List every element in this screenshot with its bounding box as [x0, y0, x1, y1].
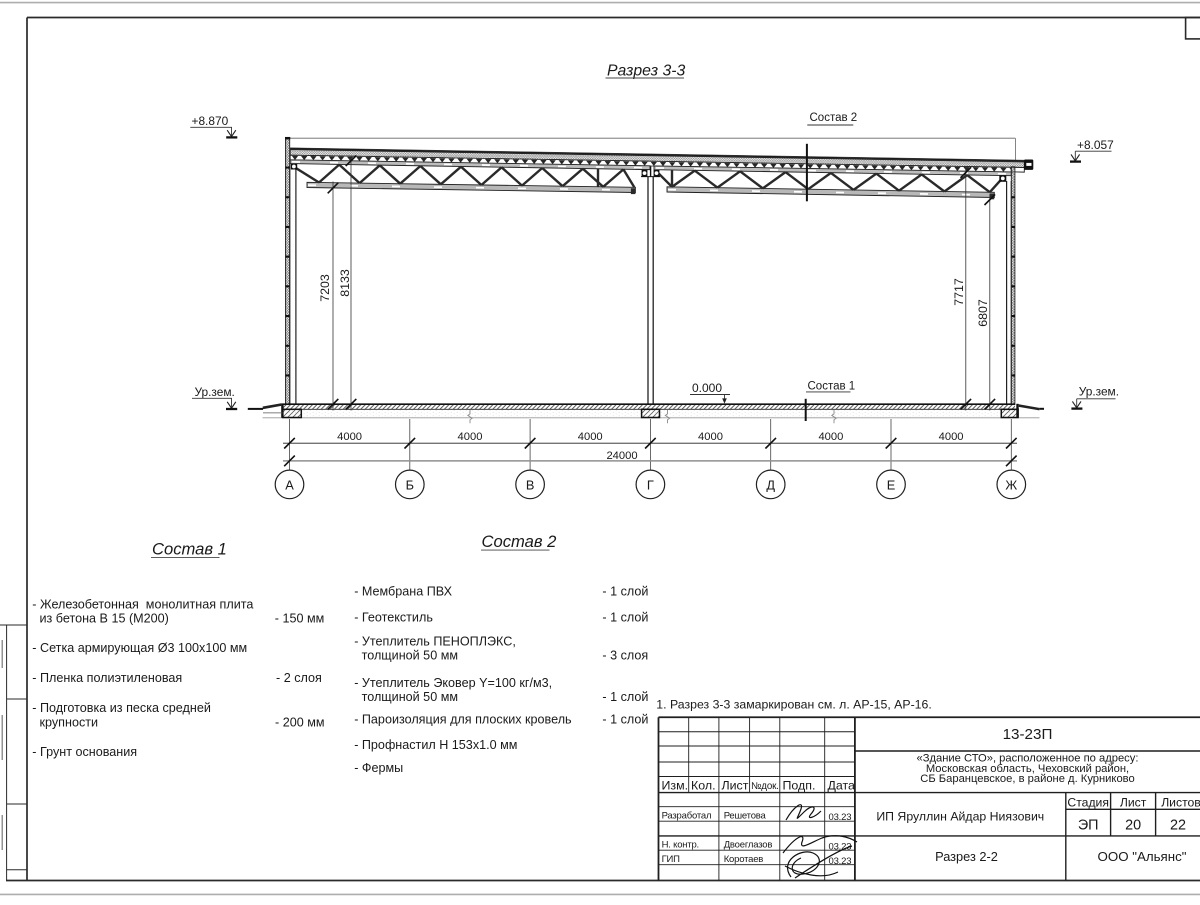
svg-text:Лист: Лист — [722, 779, 749, 793]
svg-text:- 1 слой: - 1 слой — [602, 690, 648, 704]
svg-text:7203: 7203 — [318, 274, 332, 302]
svg-text:Стадия: Стадия — [1067, 795, 1109, 809]
svg-text:ООО "Альянс": ООО "Альянс" — [1098, 849, 1187, 864]
svg-text:Разработал: Разработал — [662, 810, 712, 821]
svg-text:- Сетка армирующая Ø3 100х100: - Сетка армирующая Ø3 100х100 мм — [32, 641, 247, 655]
svg-text:- Пароизоляция для плоских кро: - Пароизоляция для плоских кровель — [354, 713, 572, 727]
svg-text:- Пленка полиэтиленовая: - Пленка полиэтиленовая — [32, 671, 182, 685]
svg-text:из бетона В 15 (М200): из бетона В 15 (М200) — [40, 612, 169, 626]
svg-text:Лист: Лист — [1120, 795, 1147, 809]
svg-text:4000: 4000 — [939, 431, 964, 443]
svg-text:крупности: крупности — [40, 715, 99, 729]
svg-text:Ж: Ж — [1005, 477, 1017, 492]
svg-text:03.23: 03.23 — [829, 856, 852, 867]
svg-text:Б: Б — [406, 477, 414, 492]
svg-text:В: В — [526, 477, 535, 492]
svg-text:- Фермы: - Фермы — [354, 761, 403, 775]
svg-text:22: 22 — [1170, 818, 1186, 834]
svg-text:- 1 слой: - 1 слой — [602, 713, 648, 727]
svg-text:Двоеглазов: Двоеглазов — [724, 840, 773, 851]
svg-text:- Железобетонная монолитная п: - Железобетонная монолитная плита — [32, 598, 253, 612]
svg-text:толщиной 50 мм: толщиной 50 мм — [362, 690, 458, 704]
svg-text:- Мембрана ПВХ: - Мембрана ПВХ — [354, 585, 452, 599]
svg-text:- 3 слоя: - 3 слоя — [602, 649, 648, 663]
svg-text:Разрез 3-3: Разрез 3-3 — [607, 63, 685, 80]
svg-text:03.23: 03.23 — [829, 812, 852, 823]
svg-text:- Утеплитель ПЕНОПЛЭКС,: - Утеплитель ПЕНОПЛЭКС, — [354, 634, 516, 648]
svg-text:Изм.: Изм. — [662, 779, 689, 793]
svg-text:8133: 8133 — [338, 269, 352, 297]
svg-text:- 1 слой: - 1 слой — [602, 611, 648, 625]
svg-text:- Грунт основания: - Грунт основания — [32, 745, 137, 759]
svg-text:- 1 слой: - 1 слой — [602, 585, 648, 599]
svg-text:Разрез 2-2: Разрез 2-2 — [935, 849, 998, 864]
svg-text:Е: Е — [887, 477, 896, 492]
svg-text:1. Разрез 3-3 замаркирован см.: 1. Разрез 3-3 замаркирован см. л. АР-15,… — [656, 698, 931, 712]
svg-text:- Геотекстиль: - Геотекстиль — [354, 611, 433, 625]
svg-text:4000: 4000 — [818, 431, 843, 443]
svg-text:Дата: Дата — [828, 779, 856, 793]
svg-text:Состав 2: Состав 2 — [482, 532, 557, 551]
svg-text:- Подготовка из песка средней: - Подготовка из песка средней — [32, 701, 211, 715]
svg-text:- 2 слоя: - 2 слоя — [276, 671, 322, 685]
svg-text:- 150 мм: - 150 мм — [275, 612, 325, 626]
svg-text:№док.: №док. — [751, 781, 779, 792]
svg-text:Н. контр.: Н. контр. — [662, 840, 699, 851]
svg-text:Ур.зем.: Ур.зем. — [1079, 385, 1119, 399]
svg-text:4000: 4000 — [578, 431, 603, 443]
svg-text:+8.870: +8.870 — [192, 114, 229, 128]
svg-text:20: 20 — [1125, 818, 1141, 834]
svg-text:Кол.: Кол. — [691, 779, 716, 793]
svg-text:4000: 4000 — [337, 431, 362, 443]
svg-text:ЭП: ЭП — [1078, 818, 1099, 834]
svg-text:А: А — [285, 477, 294, 492]
svg-text:Ур.зем.: Ур.зем. — [195, 385, 235, 399]
svg-text:Коротаев: Коротаев — [724, 854, 764, 865]
svg-text:Листов: Листов — [1161, 795, 1200, 809]
svg-text:4000: 4000 — [698, 431, 723, 443]
svg-text:- 200 мм: - 200 мм — [275, 715, 325, 729]
svg-text:6807: 6807 — [976, 299, 990, 327]
svg-text:Подп.: Подп. — [783, 779, 816, 793]
svg-text:ИП Яруллин Айдар Ниязович: ИП Яруллин Айдар Ниязович — [876, 810, 1044, 824]
svg-text:7717: 7717 — [952, 278, 966, 306]
svg-text:- Утеплитель Эковер Y=100 кг/м: - Утеплитель Эковер Y=100 кг/м3, — [354, 676, 552, 690]
svg-text:0.000: 0.000 — [692, 381, 722, 395]
svg-text:4000: 4000 — [458, 431, 483, 443]
svg-text:Решетова: Решетова — [724, 810, 767, 821]
svg-text:Д: Д — [766, 477, 775, 492]
svg-text:24000: 24000 — [606, 450, 637, 462]
svg-text:13-23П: 13-23П — [1003, 726, 1053, 743]
svg-text:Г: Г — [647, 477, 654, 492]
svg-text:толщиной 50 мм: толщиной 50 мм — [362, 649, 458, 663]
svg-text:Состав 1: Состав 1 — [808, 380, 856, 392]
svg-text:ГИП: ГИП — [662, 854, 681, 865]
svg-text:+8.057: +8.057 — [1077, 138, 1114, 152]
svg-text:Состав 2: Состав 2 — [810, 112, 858, 124]
svg-text:Состав 1: Состав 1 — [152, 540, 227, 559]
svg-text:- Профнастил Н 153х1.0 мм: - Профнастил Н 153х1.0 мм — [354, 738, 517, 752]
svg-text:СБ Баранцевское, в районе д. К: СБ Баранцевское, в районе д. Курниково — [920, 773, 1134, 785]
